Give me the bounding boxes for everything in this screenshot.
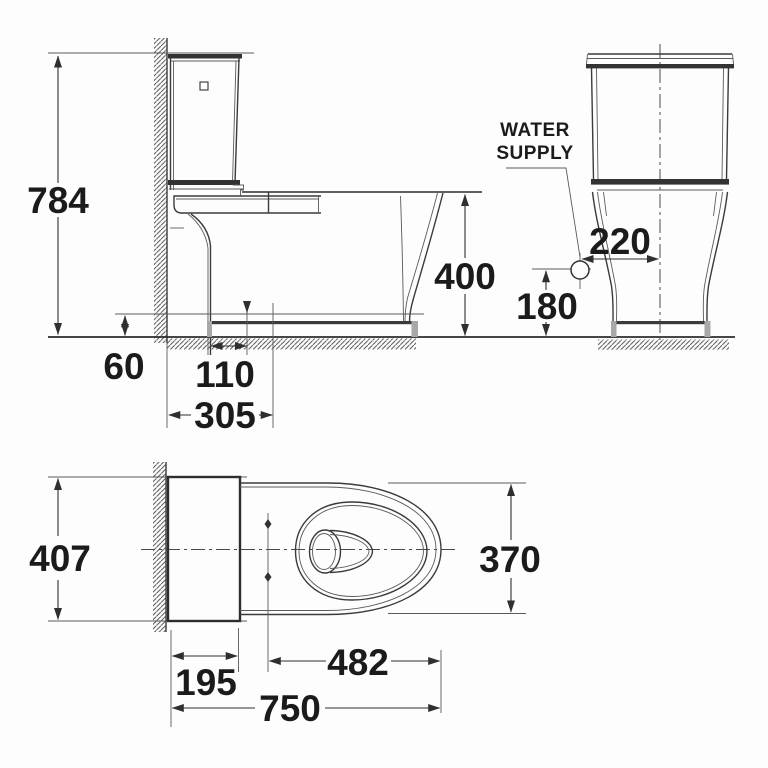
dim-407: 407 xyxy=(29,479,91,620)
flush-button xyxy=(200,82,208,90)
water-supply-label-line2: SUPPLY xyxy=(496,143,573,164)
dim-110: 110 xyxy=(195,346,255,395)
dim-label-220: 220 xyxy=(589,221,651,262)
fixing-hole-top xyxy=(265,519,272,529)
technical-drawing-page: 784 400 60 110 305 xyxy=(0,0,768,768)
toilet-dimension-diagram: 784 400 60 110 305 xyxy=(0,0,768,768)
dim-400: 400 xyxy=(434,195,496,336)
plinth-top-front xyxy=(611,321,711,324)
dim-label-370: 370 xyxy=(479,539,541,580)
dim-label-482: 482 xyxy=(327,642,389,683)
tank-lid-side xyxy=(168,54,242,59)
fixing-hole-bottom xyxy=(265,572,272,582)
dim-label-407: 407 xyxy=(29,538,91,579)
water-supply-label-line1: WATER xyxy=(500,120,570,141)
water-supply-symbol xyxy=(571,261,589,279)
plinth-top-side xyxy=(207,321,418,324)
dim-784: 784 xyxy=(27,56,89,335)
dim-220: 220 xyxy=(582,221,659,262)
dim-label-750: 750 xyxy=(259,688,321,729)
tank-bottom-band-front xyxy=(591,179,729,185)
floor-hatch-side xyxy=(167,339,416,350)
dim-370: 370 xyxy=(479,485,541,613)
wall-hatch-plan xyxy=(153,462,166,632)
floor-hatch-front xyxy=(598,340,729,351)
dim-305: 305 xyxy=(169,395,272,436)
water-supply-leader xyxy=(506,168,580,257)
dim-label-400: 400 xyxy=(434,256,496,297)
tank-lid-front xyxy=(586,64,734,68)
dim-482: 482 xyxy=(269,642,439,683)
dim-label-180: 180 xyxy=(516,286,578,327)
dim-label-60: 60 xyxy=(103,346,144,387)
front-view: WATER SUPPLY 220 180 xyxy=(496,44,734,350)
dim-180: 180 xyxy=(516,271,578,336)
dim-195: 195 xyxy=(172,656,237,703)
dim-label-305: 305 xyxy=(194,395,256,436)
plan-view: 407 370 195 482 750 xyxy=(29,462,541,729)
dim-60: 60 xyxy=(103,316,144,387)
dim-label-784: 784 xyxy=(27,180,89,221)
dim-label-110: 110 xyxy=(195,354,255,395)
dim-label-195: 195 xyxy=(175,662,237,703)
tank-bottom-band-side xyxy=(168,180,240,185)
wall-hatch xyxy=(154,38,167,343)
